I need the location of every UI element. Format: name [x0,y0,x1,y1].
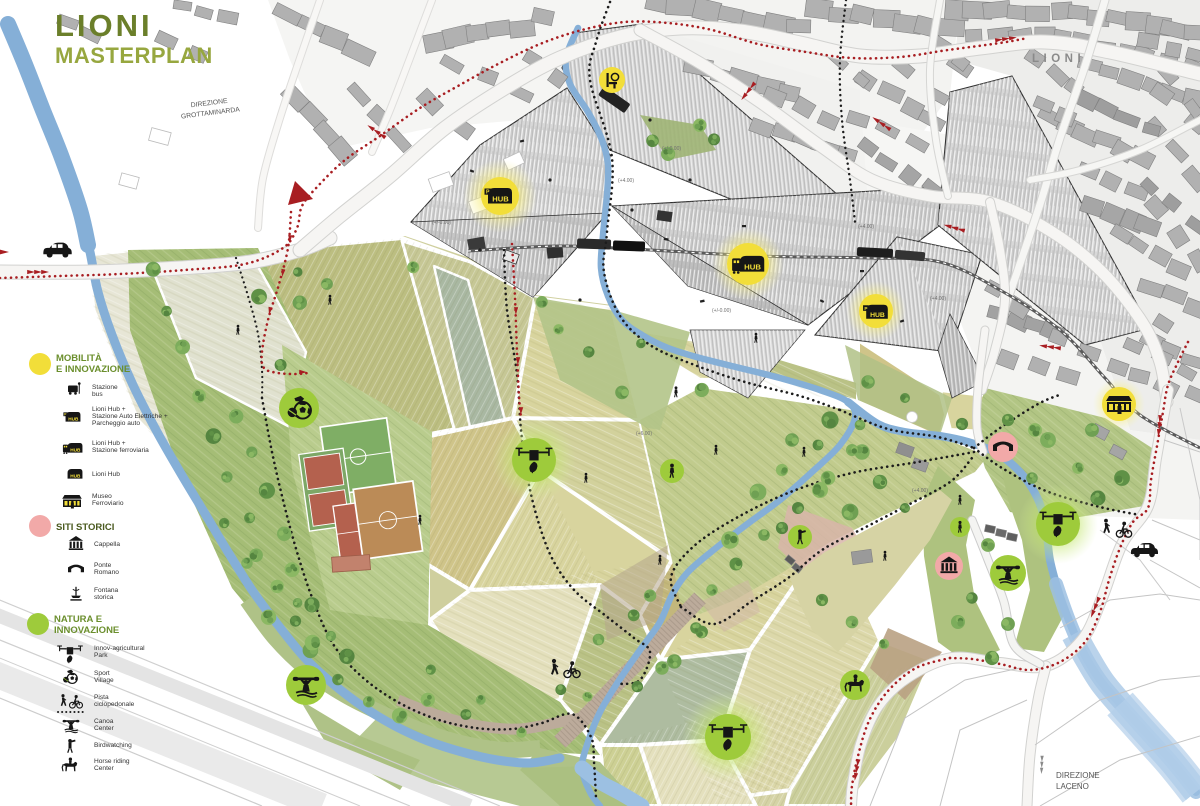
svg-text:HUB: HUB [870,312,885,319]
svg-text:MASTERPLAN: MASTERPLAN [55,43,213,68]
svg-text:Center: Center [94,725,115,732]
svg-text:Canoa: Canoa [94,718,114,725]
svg-text:Village: Village [94,677,114,684]
svg-text:HUB: HUB [68,416,79,421]
svg-text:Pista: Pista [94,694,109,701]
svg-text:NATURA E: NATURA E [54,614,102,625]
svg-text:(+4.00): (+4.00) [930,296,946,302]
svg-text:Ferroviario: Ferroviario [92,500,124,507]
svg-text:SITI STORICI: SITI STORICI [56,522,114,533]
svg-text:(+4.00): (+4.00) [618,178,634,184]
svg-text:Horse riding: Horse riding [94,758,130,765]
svg-text:Cappella: Cappella [94,541,120,548]
svg-text:Museo: Museo [92,493,112,500]
svg-text:(+/-0.00): (+/-0.00) [712,308,731,314]
svg-text:Lioni Hub: Lioni Hub [92,471,120,478]
svg-text:Stazione: Stazione [92,384,118,391]
svg-text:LIONI: LIONI [55,8,153,43]
svg-text:Ponte: Ponte [94,562,112,569]
svg-text:(+/-0.00): (+/-0.00) [662,146,681,152]
svg-text:DIREZIONE: DIREZIONE [1056,771,1100,780]
svg-text:LACENO: LACENO [1056,782,1089,791]
svg-text:Stazione Auto Elettriche +: Stazione Auto Elettriche + [92,413,168,420]
svg-text:(+4.00): (+4.00) [858,224,874,230]
svg-text:Innov-agricultural: Innov-agricultural [94,645,145,652]
svg-text:Stazione ferroviaria: Stazione ferroviaria [92,447,149,454]
svg-text:HUB: HUB [70,473,81,478]
svg-text:INNOVAZIONE: INNOVAZIONE [54,625,119,636]
svg-text:MOBILITÀ: MOBILITÀ [56,353,102,364]
svg-text:HUB: HUB [492,195,509,204]
svg-text:bus: bus [92,391,103,398]
svg-text:Lioni Hub +: Lioni Hub + [92,440,126,447]
svg-text:Romano: Romano [94,569,119,576]
svg-text:Center: Center [94,765,115,772]
svg-text:Birdwatching: Birdwatching [94,742,132,749]
svg-text:(+6.00): (+6.00) [636,431,652,437]
svg-text:(+4.00): (+4.00) [912,488,928,494]
svg-text:Park: Park [94,652,108,659]
svg-text:P: P [486,190,490,196]
svg-text:(+/-0.00): (+/-0.00) [432,220,451,226]
svg-text:HUB: HUB [744,263,761,272]
svg-text:LIONI: LIONI [1032,53,1085,65]
svg-text:HUB: HUB [70,447,81,452]
svg-text:Fontana: Fontana [94,587,119,594]
svg-text:ciclopedonale: ciclopedonale [94,701,135,708]
svg-text:Parcheggio auto: Parcheggio auto [92,420,140,427]
svg-text:storica: storica [94,594,114,601]
svg-text:Sport: Sport [94,670,110,677]
svg-text:E INNOVAZIONE: E INNOVAZIONE [56,364,130,375]
svg-text:P: P [864,306,867,311]
svg-text:Lioni Hub +: Lioni Hub + [92,406,126,413]
